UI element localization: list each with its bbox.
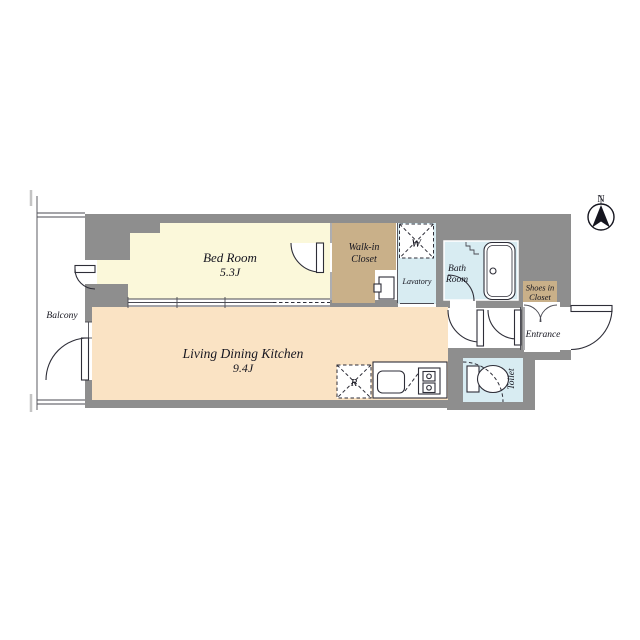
wic-label-1: Walk-in: [349, 242, 380, 253]
ldk-size: 9.4J: [233, 361, 254, 375]
kitchen-counter: [373, 362, 447, 398]
balcony-label: Balcony: [46, 311, 78, 321]
shoes-label-2: Closet: [529, 292, 551, 302]
floor-plan-drawing: Balcony: [0, 0, 640, 640]
bedroom-label: Bed Room: [203, 250, 257, 265]
shoes-label-1: Shoes in: [526, 283, 555, 293]
entrance-label: Entrance: [525, 330, 561, 340]
toilet-label: Toilet: [507, 368, 517, 390]
entrance-area: [524, 302, 560, 352]
bath-label-2: Room: [445, 275, 468, 285]
north-compass: N: [588, 194, 614, 230]
ldk-balcony-door: [46, 338, 89, 380]
stove: [419, 368, 441, 394]
bathtub: [484, 243, 515, 300]
balcony-area: Balcony: [37, 196, 85, 410]
kitchen-sink: [378, 371, 405, 393]
ldk-label: Living Dining Kitchen: [182, 346, 304, 361]
entrance-door: [571, 306, 612, 350]
closet-door-icon: [374, 277, 394, 299]
washer-label: W: [411, 238, 422, 250]
floor-plan-page: Balcony: [0, 0, 640, 640]
wic-label-2: Closet: [351, 254, 377, 265]
window-band: [128, 297, 330, 308]
bedroom-size: 5.3J: [220, 265, 241, 279]
lavatory-label: Lavatory: [402, 277, 432, 286]
bath-label-1: Bath: [448, 264, 466, 274]
refrigerator-label: R: [350, 378, 358, 389]
